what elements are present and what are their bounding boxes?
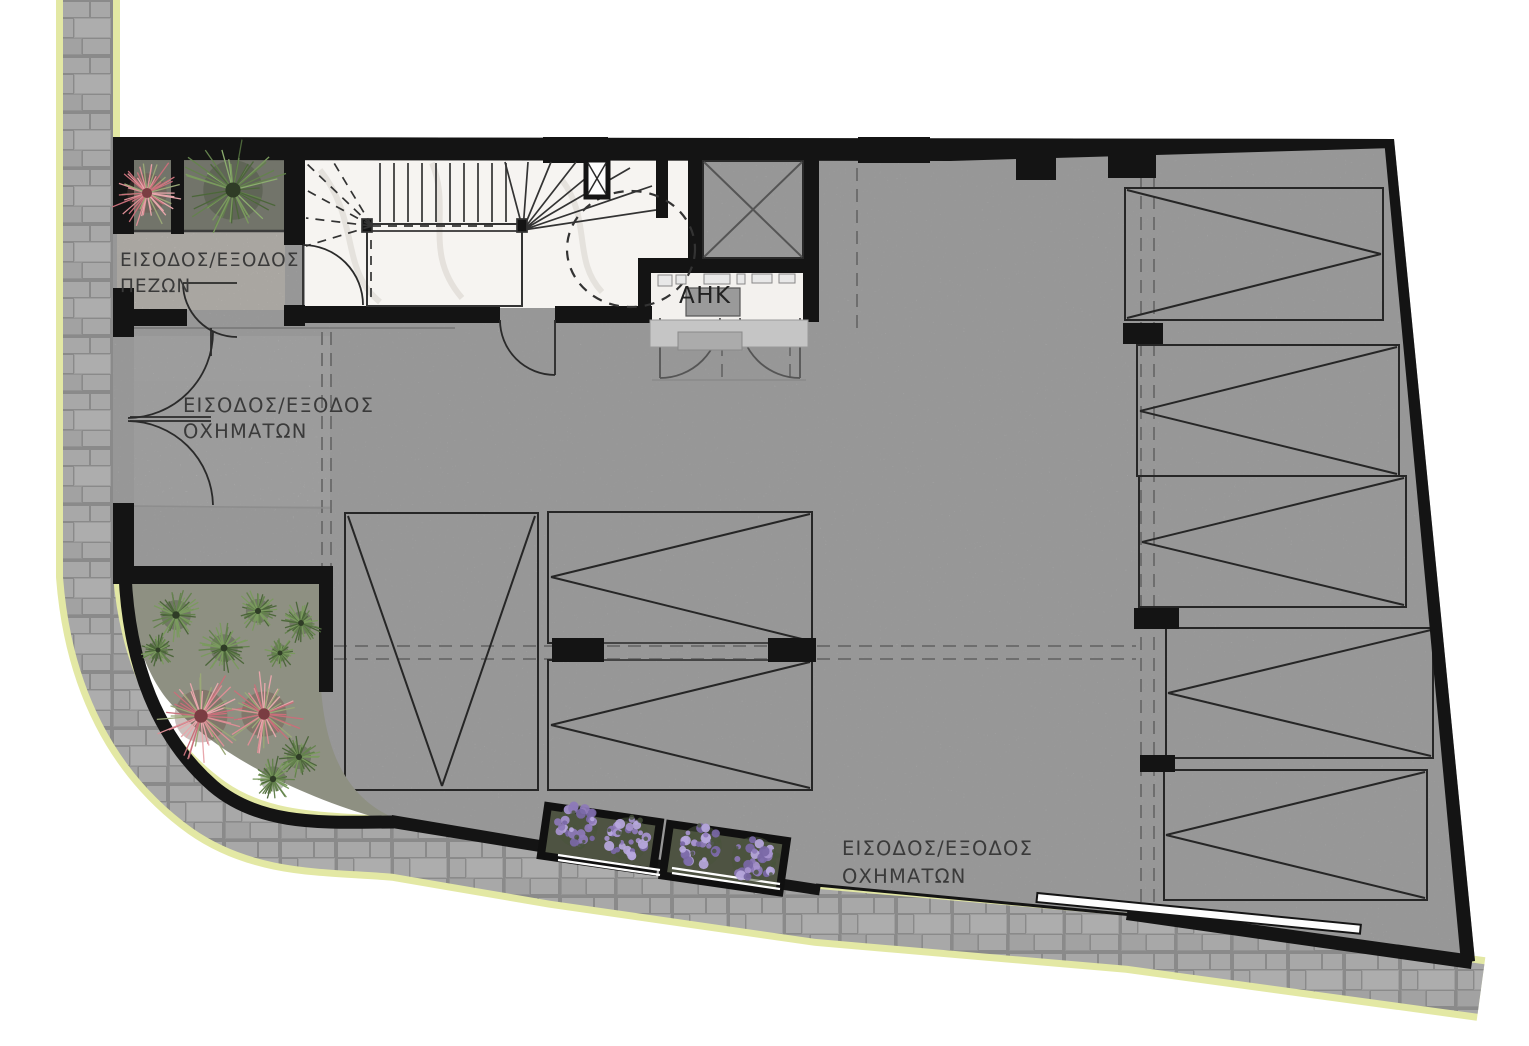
wall-left-lower [113, 503, 134, 576]
column-3 [1123, 323, 1163, 344]
vehicle-entrance-side-label-line2: ΟΧΗΜΑΤΩΝ [183, 420, 308, 443]
vehicle-entrance-side-label-line1: ΕΙΣΟΔΟΣ/ΕΞΟΔΟΣ [183, 394, 374, 417]
pedestrian-entrance-label-line1: ΕΙΣΟΔΟΣ/ΕΞΟΔΟΣ [120, 250, 299, 271]
wall-block-top-4 [1108, 144, 1156, 178]
column-4 [1134, 608, 1179, 629]
wall-block-top-3 [1016, 154, 1056, 180]
column-2 [768, 638, 816, 662]
wall-niche [656, 148, 668, 218]
floor-plan: ΕΙΣΟΔΟΣ/ΕΞΟΔΟΣ ΠΕΖΩΝ ΕΙΣΟΔΟΣ/ΕΞΟΔΟΣ ΟΧΗΜ… [0, 0, 1529, 1046]
floor-plan-canvas: ΕΙΣΟΔΟΣ/ΕΞΟΔΟΣ ΠΕΖΩΝ ΕΙΣΟΔΟΣ/ΕΞΟΔΟΣ ΟΧΗΜ… [0, 0, 1529, 1046]
wall-stair-bottom-b [555, 306, 652, 323]
wall-ramp-bottom [113, 566, 333, 584]
stair-newel-right [517, 219, 527, 232]
wall-ahk-left [638, 258, 651, 320]
wall-block-top-2 [858, 137, 930, 163]
utility-room-label: AHK [679, 283, 732, 309]
wall-right-of-core [803, 146, 819, 322]
wall-entrance-bottom [113, 309, 187, 326]
column-5 [1140, 755, 1175, 772]
ahk-shadow-box [678, 332, 742, 350]
duct-shaft [586, 160, 608, 197]
vehicle-entrance-bottom-label-line1: ΕΙΣΟΔΟΣ/ΕΞΟΔΟΣ [842, 837, 1033, 860]
pedestrian-entrance-label-line2: ΠΕΖΩΝ [120, 276, 191, 297]
wall-stair-left-upper [284, 145, 305, 245]
vehicle-entrance-bottom-label-line2: ΟΧΗΜΑΤΩΝ [842, 865, 967, 888]
wall-planter-divider [171, 148, 184, 234]
column-1 [552, 638, 604, 662]
wall-stair-bottom-a [284, 306, 500, 323]
